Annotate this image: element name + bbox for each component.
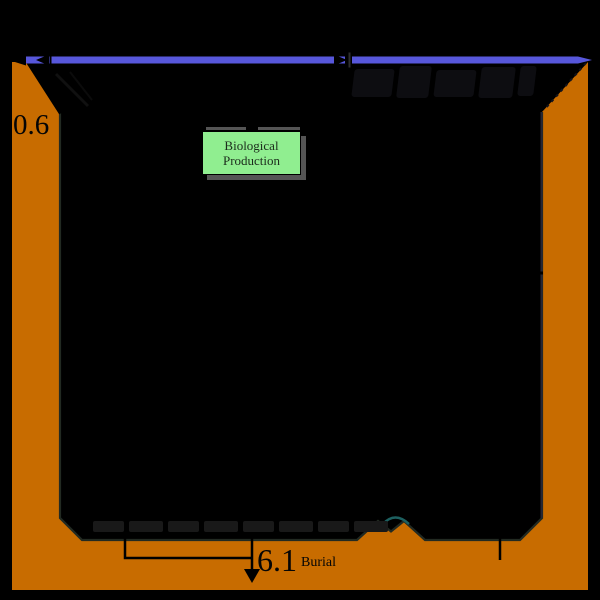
illegible-text-fragment [129, 521, 163, 532]
illegible-text-fragment [396, 66, 432, 98]
span-arrow-left-head [36, 55, 49, 66]
illegible-text-fragment [354, 521, 388, 532]
biological-production-box: Biological Production [202, 131, 301, 175]
ocean-flux-cycle-diagram: 0.6 Biological Production 6.1 Burial [0, 0, 600, 600]
burial-caption: Burial [301, 555, 336, 571]
illegible-text-fragment [478, 67, 516, 98]
left-flux-value: 0.6 [13, 109, 49, 142]
river-input-arrow-streak2 [70, 72, 92, 100]
illegible-text-fragment [243, 521, 274, 532]
illegible-text-fragment [168, 521, 199, 532]
illegible-text-fragment [204, 521, 238, 532]
illegible-text-fragment [279, 521, 313, 532]
illegible-dark-text-top [353, 66, 540, 100]
illegible-dark-text-seafloor [93, 521, 393, 533]
illegible-text-fragment [433, 70, 476, 97]
seafloor-border [60, 112, 542, 540]
burial-flux-value: 6.1 [257, 542, 297, 579]
ocean-surface-line [10, 57, 592, 64]
illegible-text-fragment [517, 66, 537, 96]
biological-production-label: Biological Production [203, 138, 300, 169]
illegible-text-fragment [351, 69, 394, 97]
illegible-text-fragment [93, 521, 124, 532]
production-box-top-shadow-left [206, 127, 246, 130]
production-box-top-shadow-right [258, 127, 300, 130]
illegible-text-fragment [318, 521, 349, 532]
